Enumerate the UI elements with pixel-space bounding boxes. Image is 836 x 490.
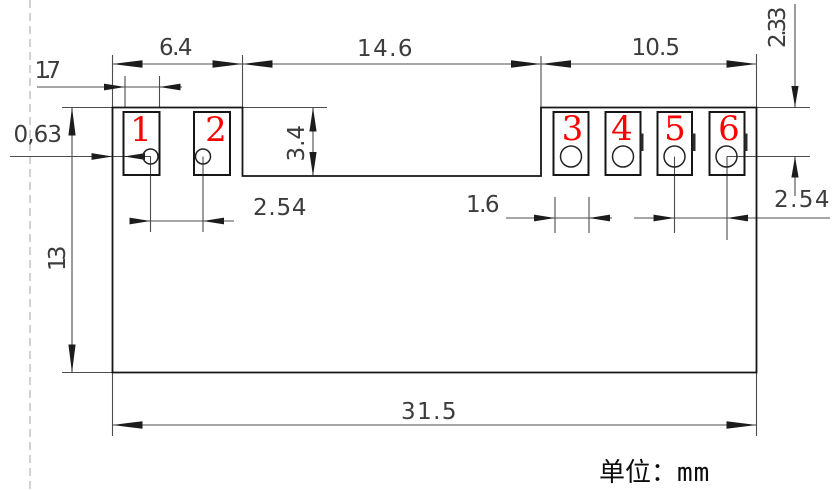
pad-2: 2 <box>194 110 230 175</box>
dim-top-chain: 6.4 14.6 10.5 <box>113 35 757 107</box>
dim-text-notch-depth: 3.4 <box>284 125 310 162</box>
arrowhead <box>213 60 243 68</box>
pad-4-number: 4 <box>611 109 633 149</box>
dim-right-pitch: 2.54 <box>634 157 830 241</box>
arrowhead <box>791 86 798 107</box>
arrowhead <box>791 157 798 178</box>
arrowhead <box>124 153 145 160</box>
arrowhead <box>309 152 316 176</box>
arrowhead <box>534 215 555 222</box>
arrowhead <box>113 60 143 68</box>
arrowhead <box>104 84 125 91</box>
arrowhead <box>727 60 757 68</box>
dim-left-pad-width: 1.7 <box>35 58 183 107</box>
arrowhead <box>727 215 748 222</box>
arrowhead <box>68 108 75 136</box>
pad-4-hole <box>613 146 634 167</box>
unit-note-label: 单位： <box>599 458 677 488</box>
dim-text-middle-notch-width: 14.6 <box>357 36 413 62</box>
pad-1-number: 1 <box>130 110 152 150</box>
arrowhead <box>92 153 113 160</box>
dim-text-right-pitch: 2.54 <box>774 187 830 213</box>
dim-top-to-hole: 2.33 <box>727 4 810 196</box>
dim-text-left-pitch: 2.54 <box>253 195 307 221</box>
pad-5-number: 5 <box>664 109 686 149</box>
arrowhead <box>203 218 224 225</box>
dim-text-left-group-width: 6.4 <box>159 35 193 61</box>
pad-2-number: 2 <box>205 110 227 150</box>
arrowhead <box>130 218 151 225</box>
dim-text-left-pad-width: 1.7 <box>35 58 62 84</box>
arrowhead <box>243 60 273 68</box>
arrowhead <box>160 84 181 91</box>
dim-text-body-height: 13 <box>45 245 71 271</box>
arrowhead <box>68 345 75 373</box>
arrowhead <box>727 421 757 429</box>
arrowhead <box>589 215 610 222</box>
footprint-dimension-svg: 6.4 14.6 10.5 1.7 0,63 3.4 <box>0 0 836 490</box>
dim-text-right-pad-width: 1.6 <box>466 192 500 218</box>
arrowhead <box>541 60 571 68</box>
arrowhead <box>309 108 316 132</box>
dim-text-edge-gap: 0,63 <box>14 122 63 148</box>
pad-1: 1 <box>124 110 160 175</box>
pad-3-hole <box>561 146 582 167</box>
pad-6-number: 6 <box>718 109 740 149</box>
dim-left-pitch: 2.54 <box>130 157 308 233</box>
dimension-layer: 6.4 14.6 10.5 1.7 0,63 3.4 <box>10 4 830 436</box>
arrowhead <box>113 421 143 429</box>
pad-3: 3 <box>554 109 589 175</box>
pad-4: 4 <box>606 109 641 175</box>
arrowhead <box>654 215 675 222</box>
pad-3-number: 3 <box>562 109 584 149</box>
unit-note-value: mm <box>677 458 710 488</box>
dim-body-width: 31.5 <box>113 373 757 436</box>
module-body: 1 2 3 4 5 6 <box>113 108 757 373</box>
technical-drawing-canvas: 6.4 14.6 10.5 1.7 0,63 3.4 <box>0 0 836 490</box>
arrowhead <box>511 60 541 68</box>
dim-text-body-width: 31.5 <box>401 399 457 425</box>
dim-text-top-to-hole: 2.33 <box>765 6 791 48</box>
dim-right-pad-width: 1.6 <box>466 192 612 233</box>
dim-text-right-group-width: 10.5 <box>632 35 681 61</box>
unit-note: 单位： mm <box>599 458 710 488</box>
